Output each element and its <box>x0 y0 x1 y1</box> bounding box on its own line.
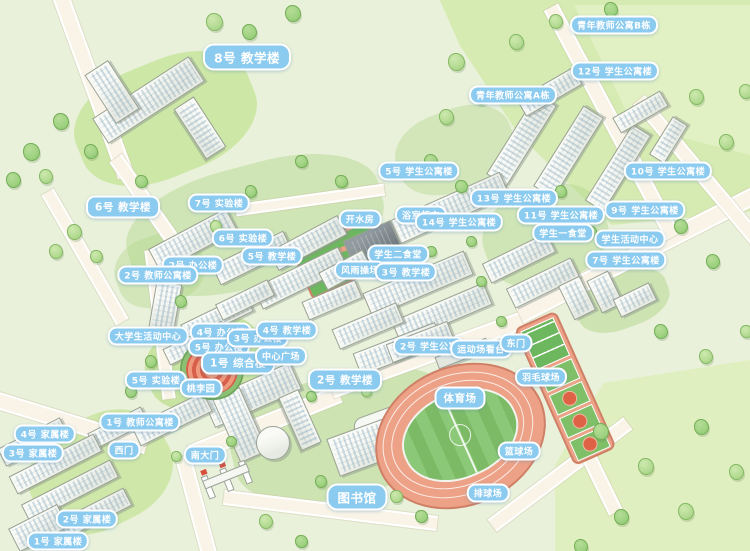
map-label: 西门 <box>107 441 140 460</box>
tree-icon <box>654 324 668 339</box>
map-label: 7号 实验楼 <box>188 194 250 213</box>
tree-icon <box>638 458 654 475</box>
tree-icon <box>226 436 237 448</box>
tree-icon <box>6 172 21 188</box>
tree-icon <box>549 14 563 29</box>
map-label: 东门 <box>499 334 532 353</box>
campus-map: 8号 教学楼青年教师公寓B栋12号 学生公寓楼青年教师公寓A栋10号 学生公寓楼… <box>0 0 750 551</box>
map-label: 14号 学生公寓楼 <box>415 213 503 232</box>
tree-icon <box>706 254 720 269</box>
map-label: 3号 家属楼 <box>2 444 64 463</box>
tree-icon <box>699 349 713 364</box>
tree-icon <box>415 510 428 524</box>
tree-icon <box>145 355 157 368</box>
map-label: 4号 教学楼 <box>256 321 318 340</box>
map-label: 5号 教学楼 <box>241 247 303 266</box>
tree-icon <box>574 539 588 551</box>
map-label: 篮球场 <box>498 442 541 461</box>
map-label: 青年教师公寓B栋 <box>570 16 658 35</box>
map-label: 青年教师公寓A栋 <box>469 86 557 105</box>
tree-icon <box>49 244 63 259</box>
map-label: 南大门 <box>184 446 227 465</box>
map-label: 学生一食堂 <box>532 224 594 243</box>
tree-icon <box>171 451 182 463</box>
map-label: 1号 教师公寓楼 <box>99 413 180 432</box>
map-label: 8号 教学楼 <box>203 44 291 71</box>
tree-icon <box>466 236 477 248</box>
building-rotunda <box>256 426 290 460</box>
map-label: 1号 家属楼 <box>27 532 89 551</box>
tree-icon <box>135 175 148 189</box>
map-label: 7号 学生公寓楼 <box>585 251 666 270</box>
tree-icon <box>740 325 750 339</box>
map-label: 3号 教学楼 <box>375 263 437 282</box>
map-label: 桃李园 <box>180 379 223 398</box>
map-label: 体育场 <box>435 387 486 410</box>
map-label: 4号 家属楼 <box>14 425 76 444</box>
map-label: 学生活动中心 <box>594 230 665 249</box>
tree-icon <box>509 34 524 50</box>
tree-icon <box>593 423 609 440</box>
tree-icon <box>476 276 487 288</box>
map-label: 2号 家属楼 <box>56 510 118 529</box>
tree-icon <box>23 143 40 161</box>
tree-icon <box>285 5 301 22</box>
map-label: 排球场 <box>467 484 510 503</box>
map-label: 5号 学生公寓楼 <box>378 162 459 181</box>
tree-icon <box>90 250 103 264</box>
map-label: 开水房 <box>339 210 382 229</box>
map-label: 图书馆 <box>326 484 387 511</box>
tree-icon <box>39 169 53 184</box>
map-label: 大学生活动中心 <box>108 327 189 346</box>
map-label: 6号 教学楼 <box>86 196 160 219</box>
tree-icon <box>84 144 98 159</box>
map-label: 2号 教师公寓楼 <box>117 266 198 285</box>
tree-icon <box>335 175 348 189</box>
tree-icon <box>242 24 257 40</box>
tree-icon <box>295 155 308 169</box>
tree-icon <box>496 316 507 328</box>
tree-icon <box>306 391 317 403</box>
tree-icon <box>694 419 709 435</box>
tree-icon <box>689 89 704 105</box>
map-label: 12号 学生公寓楼 <box>571 62 659 81</box>
tree-icon <box>739 84 750 99</box>
tree-icon <box>175 295 187 308</box>
tree-icon <box>206 13 223 31</box>
tree-icon <box>674 219 688 234</box>
tree-icon <box>455 180 468 194</box>
tree-icon <box>729 464 744 480</box>
map-label: 6号 实验楼 <box>212 229 274 248</box>
tree-icon <box>67 224 82 240</box>
tree-icon <box>448 53 465 71</box>
tree-icon <box>53 113 69 130</box>
tree-icon <box>390 490 403 504</box>
map-label: 10号 学生公寓楼 <box>624 162 712 181</box>
map-label: 5号 实验楼 <box>125 371 187 390</box>
tree-icon <box>719 134 734 150</box>
tree-icon <box>259 514 273 529</box>
tree-icon <box>439 109 454 125</box>
map-label: 羽毛球场 <box>515 368 567 387</box>
tree-icon <box>295 535 308 549</box>
tree-icon <box>614 509 629 525</box>
map-label: 2号 教学楼 <box>308 369 382 392</box>
tree-icon <box>315 475 327 488</box>
map-label: 9号 学生公寓楼 <box>604 201 685 220</box>
tree-icon <box>678 503 694 520</box>
map-label: 中心广场 <box>255 347 307 366</box>
map-label: 11号 学生公寓楼 <box>517 206 605 225</box>
